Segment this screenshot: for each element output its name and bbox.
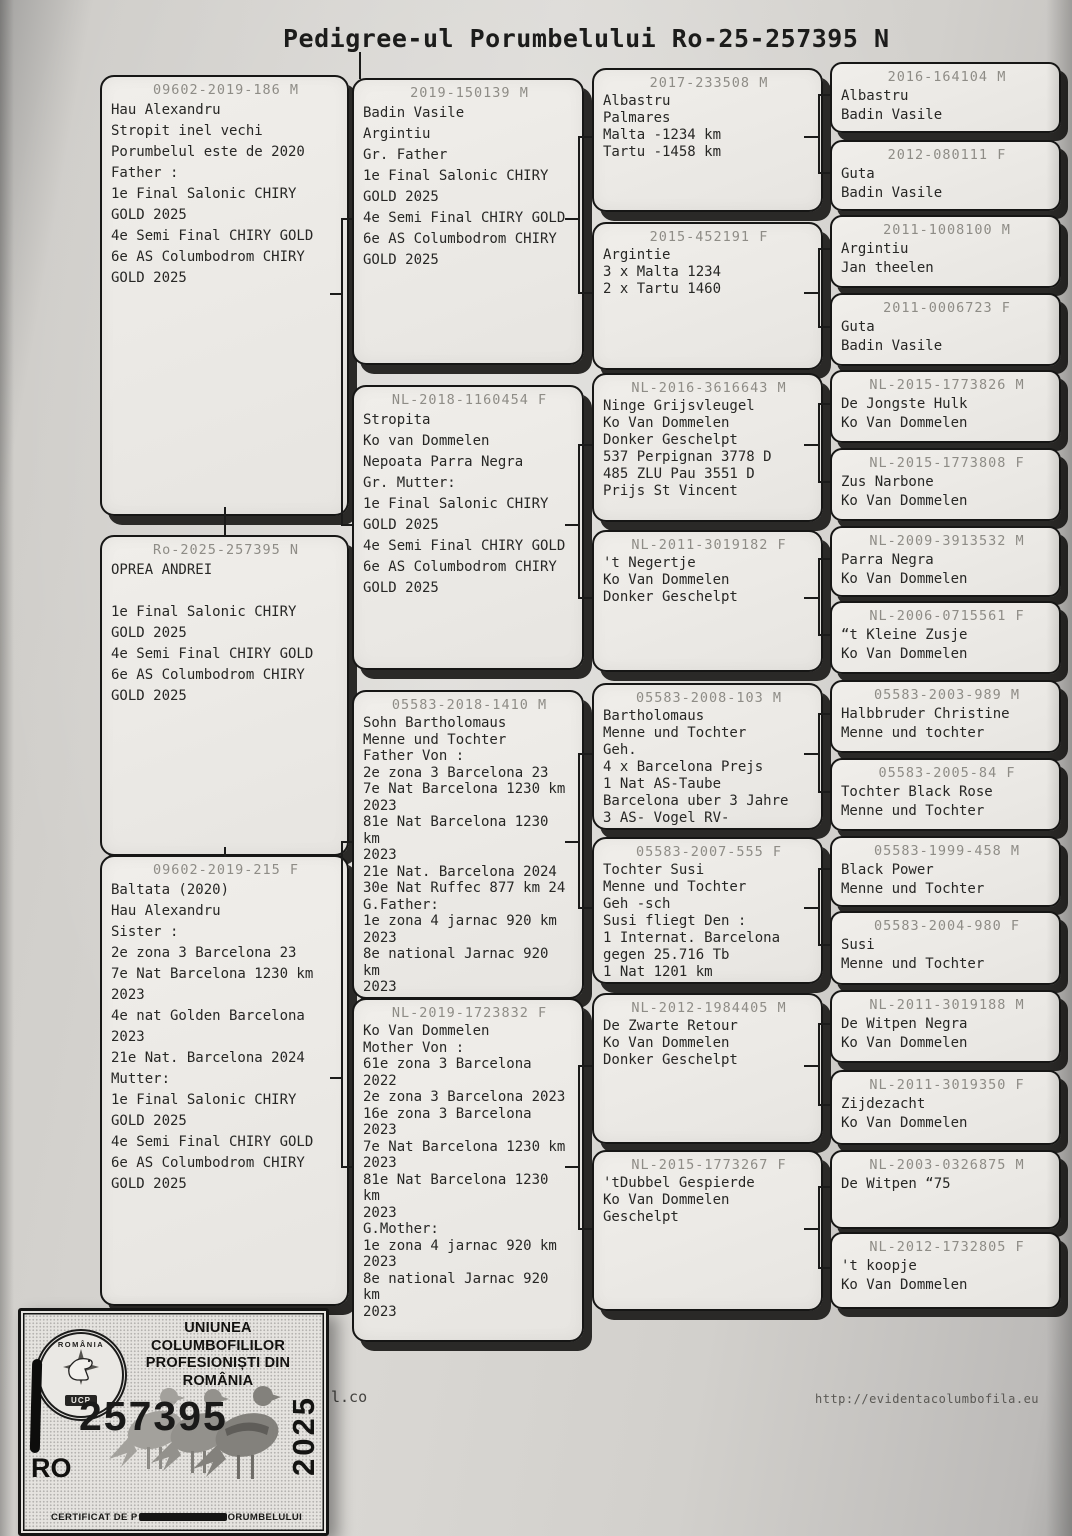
partial-url-text: l.co — [331, 1388, 367, 1406]
pedigree-text: “t Kleine Zusje Ko Van Dommelen — [841, 626, 1053, 663]
pedigree-text: Tochter Black Rose Menne und Tochter — [841, 783, 1053, 820]
connector-line — [818, 634, 830, 636]
connector-line — [818, 1023, 830, 1025]
connector-line — [341, 841, 343, 1168]
pedigree-text: Argintiu Jan theelen — [841, 240, 1053, 277]
pedigree-text: 'tDubbel Gespierde Ko Van Dommelen Gesch… — [603, 1175, 815, 1226]
connector-line — [818, 1104, 830, 1106]
connector-line — [578, 753, 592, 755]
pedigree-box-ggp-8: NL-2015-1773267 F 'tDubbel Gespierde Ko … — [592, 1150, 823, 1311]
connector-line — [578, 136, 580, 294]
pedigree-box-gggp-15: NL-2003-0326875 M De Witpen “75 — [830, 1150, 1061, 1229]
ring-number: NL-2015-1773267 F — [603, 1155, 815, 1175]
connector-line — [578, 444, 592, 446]
ring-number: NL-2011-3019188 M — [841, 995, 1053, 1015]
pedigree-text: Guta Badin Vasile — [841, 165, 1053, 202]
pedigree-text: Halbbruder Christine Menne und tochter — [841, 705, 1053, 742]
ring-number: 05583-2007-555 F — [603, 842, 815, 862]
pedigree-box-gggp-13: NL-2011-3019188 M De Witpen Negra Ko Van… — [830, 990, 1061, 1063]
ring-number: NL-2015-1773808 F — [841, 453, 1053, 473]
connector-line — [818, 94, 820, 174]
ring-number: 05583-2008-103 M — [603, 688, 815, 708]
pedigree-box-grandmother-paternal: NL-2018-1160454 F Stropita Ko van Dommel… — [352, 385, 584, 670]
ring-number: NL-2003-0326875 M — [841, 1155, 1053, 1175]
connector-line — [818, 94, 830, 96]
ring-number: 05583-1999-458 M — [841, 841, 1053, 861]
ring-number: NL-2012-1984405 M — [603, 998, 815, 1018]
connector-line — [818, 713, 820, 793]
dove-icon — [59, 1349, 103, 1385]
pedigree-box-gggp-6: NL-2015-1773808 F Zus Narbone Ko Van Dom… — [830, 448, 1061, 521]
ring-number: NL-2018-1160454 F — [363, 390, 576, 410]
connector-line — [818, 944, 830, 946]
pedigree-text: 't koopje Ko Van Dommelen — [841, 1257, 1053, 1294]
ring-number: NL-2011-3019182 F — [603, 535, 815, 555]
ring-number: 05583-2018-1410 M — [363, 695, 576, 715]
ring-number: NL-2011-3019350 F — [841, 1075, 1053, 1095]
pedigree-text: Black Power Menne und Tochter — [841, 861, 1053, 898]
connector-line — [818, 558, 820, 636]
ring-number: 05583-2003-989 M — [841, 685, 1053, 705]
pedigree-box-ggp-4: NL-2011-3019182 F 't Negertje Ko Van Dom… — [592, 530, 823, 672]
pedigree-box-ggp-3: NL-2016-3616643 M Ninge Grijsvleugel Ko … — [592, 373, 823, 522]
pedigree-text: Albastru Palmares Malta -1234 km Tartu -… — [603, 93, 815, 161]
pedigree-box-subject: Ro-2025-257395 N OPREA ANDREI 1e Final S… — [100, 535, 349, 856]
connector-line — [341, 218, 343, 526]
connector-line — [818, 403, 820, 483]
pedigree-text: Ninge Grijsvleugel Ko Van Dommelen Donke… — [603, 398, 815, 500]
connector-line — [578, 753, 580, 909]
ring-number: NL-2015-1773826 M — [841, 375, 1053, 395]
pedigree-text: De Witpen “75 — [841, 1175, 1053, 1194]
ring-number: NL-2009-3913532 M — [841, 531, 1053, 551]
connector-line — [341, 218, 352, 220]
connector-line — [578, 444, 580, 599]
pedigree-box-ggp-6: 05583-2007-555 F Tochter Susi Menne und … — [592, 837, 823, 984]
ring-number: NL-2016-3616643 M — [603, 378, 815, 398]
cert-text-suffix: ORUMBELULUI — [228, 1512, 303, 1523]
pedigree-box-gggp-10: 05583-2005-84 F Tochter Black Rose Menne… — [830, 758, 1061, 831]
ring-number: NL-2006-0715561 F — [841, 606, 1053, 626]
pedigree-box-mother: 09602-2019-215 F Baltata (2020) Hau Alex… — [100, 855, 349, 1306]
pedigree-text: Bartholomaus Menne und Tochter Geh. 4 x … — [603, 708, 815, 827]
connector-line — [818, 481, 830, 483]
pedigree-box-gggp-9: 05583-2003-989 M Halbbruder Christine Me… — [830, 680, 1061, 753]
pedigree-text: Sohn Bartholomaus Menne und Tochter Fath… — [363, 715, 576, 996]
pedigree-box-grandmother-maternal: NL-2019-1723832 F Ko Van Dommelen Mother… — [352, 998, 584, 1342]
connector-line — [818, 1267, 830, 1269]
connector-line — [341, 524, 352, 526]
connector-line — [818, 713, 830, 715]
ring-number: 05583-2005-84 F — [841, 763, 1053, 783]
pedigree-text: De Zwarte Retour Ko Van Dommelen Donker … — [603, 1018, 815, 1069]
ring-number: 2011-1008100 M — [841, 220, 1053, 240]
stamp-certificate-line: CERTIFICAT DE PORUMBELULUI — [51, 1512, 302, 1523]
ring-number: 05583-2004-980 F — [841, 916, 1053, 936]
pedigree-box-grandfather-maternal: 05583-2018-1410 M Sohn Bartholomaus Menn… — [352, 690, 584, 999]
connector-line — [578, 1065, 592, 1067]
pedigree-box-gggp-14: NL-2011-3019350 F Zijdezacht Ko Van Domm… — [830, 1070, 1061, 1145]
pedigree-text: Ko Van Dommelen Mother Von : 61e zona 3 … — [363, 1023, 576, 1320]
ring-number: 2011-0006723 F — [841, 298, 1053, 318]
pedigree-text: Badin Vasile Argintiu Gr. Father 1e Fina… — [363, 103, 576, 271]
stamp-org-line1: UNIUNEA COLUMBOFILILOR — [117, 1320, 319, 1355]
pedigree-box-gggp-8: NL-2006-0715561 F “t Kleine Zusje Ko Van… — [830, 601, 1061, 674]
pedigree-box-gggp-12: 05583-2004-980 F Susi Menne und Tochter — [830, 911, 1061, 985]
connector-line — [578, 597, 592, 599]
pedigree-document: Pedigree-ul Porumbelului Ro-25-257395 N … — [0, 0, 1072, 1536]
ring-number: 09602-2019-186 M — [111, 80, 341, 100]
pedigree-box-grandfather-paternal: 2019-150139 M Badin Vasile Argintiu Gr. … — [352, 78, 584, 365]
pedigree-box-ggp-5: 05583-2008-103 M Bartholomaus Menne und … — [592, 683, 823, 830]
ring-number: 2016-164104 M — [841, 67, 1053, 87]
pedigree-box-gggp-7: NL-2009-3913532 M Parra Negra Ko Van Dom… — [830, 526, 1061, 597]
pedigree-box-ggp-7: NL-2012-1984405 M De Zwarte Retour Ko Va… — [592, 993, 823, 1144]
pedigree-box-gggp-16: NL-2012-1732805 F 't koopje Ko Van Domme… — [830, 1232, 1061, 1309]
pedigree-text: Hau Alexandru Stropit inel vechi Porumbe… — [111, 100, 341, 289]
ring-number: NL-2019-1723832 F — [363, 1003, 576, 1023]
stamp-country-code: RO — [31, 1453, 72, 1484]
ring-number: 09602-2019-215 F — [111, 860, 341, 880]
pedigree-box-gggp-2: 2012-080111 F Guta Badin Vasile — [830, 140, 1061, 211]
connector-line — [818, 403, 830, 405]
connector-line — [359, 52, 361, 79]
pedigree-text: Stropita Ko van Dommelen Nepoata Parra N… — [363, 410, 576, 599]
pedigree-text: Argintie 3 x Malta 1234 2 x Tartu 1460 — [603, 247, 815, 298]
ring-number: 2017-233508 M — [603, 73, 815, 93]
pedigree-box-gggp-1: 2016-164104 M Albastru Badin Vasile — [830, 62, 1061, 133]
connector-line — [224, 847, 226, 857]
connector-line — [818, 1186, 820, 1269]
pedigree-text: De Witpen Negra Ko Van Dommelen — [841, 1015, 1053, 1052]
pedigree-text: Guta Badin Vasile — [841, 318, 1053, 355]
connector-line — [818, 558, 830, 560]
pedigree-text: Parra Negra Ko Van Dommelen — [841, 551, 1053, 588]
logo-country-label: ROMÂNIA — [40, 1340, 122, 1349]
ring-number: 2012-080111 F — [841, 145, 1053, 165]
connector-line — [818, 868, 820, 946]
stamp-serial-number: 257395 — [79, 1393, 228, 1440]
connector-line — [818, 248, 820, 328]
connector-line — [578, 1065, 580, 1230]
pedigree-text: OPREA ANDREI 1e Final Salonic CHIRY GOLD… — [111, 560, 341, 707]
connector-line — [341, 1166, 352, 1168]
connector-line — [818, 326, 830, 328]
pedigree-text: De Jongste Hulk Ko Van Dommelen — [841, 395, 1053, 432]
pedigree-text: Zus Narbone Ko Van Dommelen — [841, 473, 1053, 510]
connector-line — [224, 507, 226, 535]
website-url: http://evidentacolumbofila.eu — [815, 1392, 1039, 1406]
connector-line — [818, 248, 830, 250]
pen-mark — [30, 1359, 42, 1453]
connector-line — [341, 841, 352, 843]
pedigree-text: 't Negertje Ko Van Dommelen Donker Gesch… — [603, 555, 815, 606]
connector-line — [578, 1228, 592, 1230]
ring-number: 2019-150139 M — [363, 83, 576, 103]
pedigree-box-gggp-3: 2011-1008100 M Argintiu Jan theelen — [830, 215, 1061, 288]
connector-line — [818, 1186, 830, 1188]
connector-line — [578, 136, 592, 138]
pedigree-box-ggp-2: 2015-452191 F Argintie 3 x Malta 1234 2 … — [592, 222, 823, 370]
ring-number: 2015-452191 F — [603, 227, 815, 247]
pedigree-text: Zijdezacht Ko Van Dommelen — [841, 1095, 1053, 1132]
cert-text-prefix: CERTIFICAT DE P — [51, 1512, 138, 1523]
ring-number: Ro-2025-257395 N — [111, 540, 341, 560]
pedigree-text: Tochter Susi Menne und Tochter Geh -sch … — [603, 862, 815, 981]
certificate-stamp: ROMÂNIA UCP UNIUNEA COLUMBOFILILOR PROFE… — [18, 1308, 329, 1536]
pedigree-box-gggp-11: 05583-1999-458 M Black Power Menne und T… — [830, 836, 1061, 907]
connector-line — [578, 292, 592, 294]
pedigree-box-gggp-4: 2011-0006723 F Guta Badin Vasile — [830, 293, 1061, 366]
pedigree-text: Albastru Badin Vasile — [841, 87, 1053, 124]
connector-line — [818, 1023, 820, 1106]
page-title: Pedigree-ul Porumbelului Ro-25-257395 N — [283, 24, 890, 54]
connector-line — [818, 172, 830, 174]
connector-line — [818, 791, 830, 793]
connector-line — [578, 907, 592, 909]
pedigree-box-father: 09602-2019-186 M Hau Alexandru Stropit i… — [100, 75, 349, 516]
redaction-bar — [139, 1513, 227, 1521]
connector-line — [818, 868, 830, 870]
ring-number: NL-2012-1732805 F — [841, 1237, 1053, 1257]
stamp-year: 2025 — [286, 1395, 322, 1476]
pedigree-text: Baltata (2020) Hau Alexandru Sister : 2e… — [111, 880, 341, 1195]
pedigree-box-ggp-1: 2017-233508 M Albastru Palmares Malta -1… — [592, 68, 823, 212]
pedigree-box-gggp-5: NL-2015-1773826 M De Jongste Hulk Ko Van… — [830, 370, 1061, 443]
pedigree-text: Susi Menne und Tochter — [841, 936, 1053, 973]
